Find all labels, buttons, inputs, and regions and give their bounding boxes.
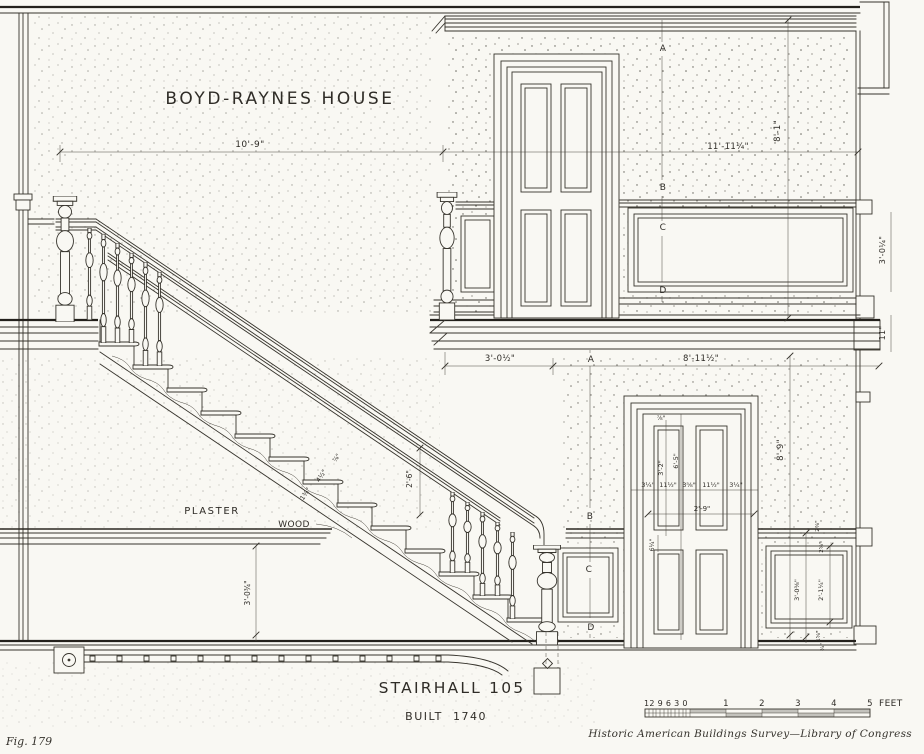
dim-right-panel-height: 3'-0⅜" (793, 579, 801, 601)
dim-wainscot-left: 3'-0¾" (243, 580, 252, 605)
scale-foot-4: 4 (831, 699, 837, 709)
dim-door-stile: 3¼" (641, 481, 654, 489)
scale-foot-5: 5 (867, 699, 873, 709)
drawing-sheet: BOYD-RAYNES HOUSE 10'-9" 11'-11¼" 8'-1" … (0, 0, 924, 754)
dim-door-panel2: 11½" (702, 481, 720, 489)
dim-lower-height: 8'-9" (776, 439, 786, 461)
dim-landing: 3'-0½" (485, 354, 515, 364)
plan-newel-left (54, 647, 84, 673)
upper-door (494, 54, 619, 318)
stairhall-section-drawing: BOYD-RAYNES HOUSE 10'-9" 11'-11¼" 8'-1" … (0, 0, 924, 754)
lower-door (624, 396, 758, 648)
cornice (432, 16, 856, 33)
dim-lower-hall: 8'-11½" (683, 354, 719, 364)
ceiling-lines (0, 7, 860, 13)
dim-right-panel: 2'-1¼" (817, 579, 825, 601)
marker-d-lower: D (587, 623, 594, 633)
dim-door-top-rail: ⅞" (657, 415, 666, 422)
marker-c-lower: C (586, 565, 593, 575)
dim-right-panel-top1: 2⅞" (815, 520, 821, 531)
dim-door-upper-panel: 3'-2" (657, 460, 665, 475)
built-year: 1740 (453, 710, 487, 723)
dim-door-panel: 11½" (659, 481, 677, 489)
right-wall-upper-corner (858, 2, 889, 94)
dim-floor-depth: 11" (878, 326, 887, 341)
scale-foot-2: 2 (759, 699, 765, 709)
dim-upper-hall: 11'-11¼" (707, 142, 749, 152)
dim-door-lower-panel: 6'-5" (672, 453, 680, 468)
drawing-title: BOYD-RAYNES HOUSE (165, 89, 394, 109)
scale-inch-labels: 12 9 6 3 0 (644, 699, 688, 708)
dim-door-muntin: 3⅝" (682, 481, 695, 489)
lower-newel-post (534, 545, 561, 645)
dim-stair-run: 10'-9" (235, 140, 264, 150)
dim-right-panel-bot1: 1⅝" (816, 630, 822, 641)
credit-line: Historic American Buildings Survey—Libra… (587, 728, 912, 740)
dim-door-mid-width: 2'-9" (694, 505, 711, 513)
lower-balusters (449, 492, 516, 619)
marker-b-upper: B (660, 183, 667, 193)
right-wall-profile (854, 31, 880, 644)
scale-foot-3: 3 (795, 699, 801, 709)
dim-rail-height: 2'-6" (405, 470, 414, 488)
label-plaster: PLASTER (184, 506, 240, 517)
dim-upper-height: 8'-1" (773, 120, 783, 142)
lower-wainscot-right (766, 546, 852, 628)
dim-right-panel-bot2: ¾" (820, 643, 826, 651)
scale-bar: 12 9 6 3 0 1 2 3 4 5 FEET (644, 699, 903, 717)
dim-right-panel-top2: 2⅝" (819, 541, 825, 552)
figure-caption: Fig. 179 (5, 735, 52, 748)
built-label: BUILT (405, 710, 443, 723)
marker-a-lower: A (588, 355, 595, 365)
lower-wainscot-left (558, 548, 618, 622)
marker-b-lower: B (587, 512, 594, 522)
marker-c-upper: C (660, 223, 667, 233)
dim-door-lock-rail: 6¼" (649, 539, 656, 552)
dim-upper-wainscot: 3'-0¼" (878, 236, 887, 265)
room-label: STAIRHALL 105 (379, 679, 526, 697)
label-wood: WOOD (278, 520, 310, 530)
scale-foot-1: 1 (723, 699, 729, 709)
dim-door-stile2: 3¼" (729, 481, 742, 489)
scale-unit: FEET (879, 699, 903, 709)
marker-d-upper: D (659, 286, 666, 296)
marker-a-upper: A (660, 44, 667, 54)
